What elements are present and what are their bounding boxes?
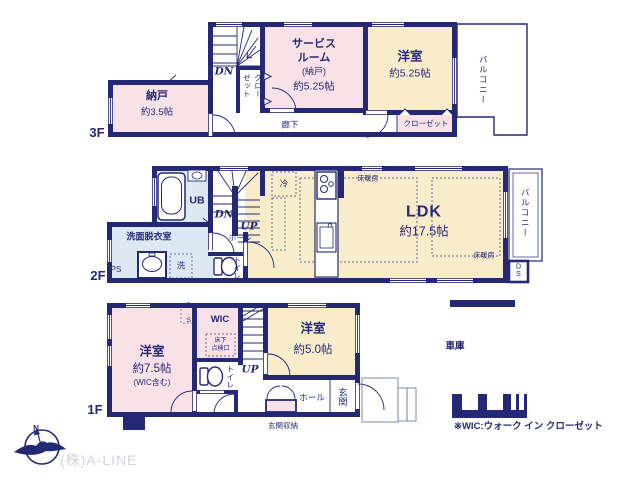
entrance-storage-box <box>266 400 296 412</box>
ds-label: DS <box>515 264 522 279</box>
wic-note: ※WIC:ウォーク イン クローゼット <box>454 422 603 432</box>
ldk-label: LDK <box>406 205 442 222</box>
stairs-dn-label-3f: DN <box>215 66 234 77</box>
kitchen-counter-icon <box>315 170 338 277</box>
floor-heating-label-2: 床暖房 <box>474 252 495 259</box>
stairs-up-label-1f: UP <box>241 364 258 375</box>
stair-closet-label: クローゼット <box>241 74 264 101</box>
ps-label-2f: PS <box>111 266 122 274</box>
company-name: (株)A-LINE <box>60 453 137 468</box>
floor2-plan <box>107 166 542 283</box>
washbasin-icon <box>138 252 166 278</box>
stairs-up-label-2f: UP <box>240 221 257 232</box>
hallway-label: 廊下 <box>281 121 298 130</box>
hall-1f-label: ホール <box>299 394 325 403</box>
bedroom-main-note: (WIC含む) <box>134 379 171 387</box>
service-room-size: 約5.25帖 <box>293 81 334 92</box>
floorplan-canvas: 3F 納戸 約3.5帖 DN クローゼット サービス ルーム (納戸) 約5.2… <box>0 0 640 480</box>
compass-n-label: N <box>33 425 39 433</box>
floor-heating-label-1: 床暖房 <box>358 175 379 182</box>
toilet-2f-label: トイレ <box>233 256 241 280</box>
stairs-dn-label-2f: DN <box>215 209 234 220</box>
room-nando-label: 納戸 <box>146 91 168 103</box>
bedroom-main-label: 洋室 <box>139 345 164 358</box>
toilet-1f-label: トイレ <box>226 365 234 389</box>
service-room-label3: (納戸) <box>302 67 326 76</box>
garage-gate-icon <box>450 300 527 418</box>
underfloor-hatch-label2: 点検口 <box>211 346 229 352</box>
ldk-size: 約17.5帖 <box>399 225 448 238</box>
fridge-label: 冷 <box>280 180 289 189</box>
compass-icon <box>14 428 66 464</box>
service-room-label1: サービス <box>292 39 336 51</box>
entrance-storage-label: 玄関収納 <box>268 422 298 430</box>
balcony-3f-outline <box>457 24 527 135</box>
balcony-2f-label: バルコニー <box>521 188 530 238</box>
bedroom-main-size: 約7.5帖 <box>133 363 172 375</box>
floor3-label: 3F <box>89 126 104 140</box>
closet-3f-label: クローゼット <box>404 120 449 128</box>
room-nando-size: 約3.5帖 <box>141 108 173 118</box>
ps-label-1f: P.S <box>185 302 192 325</box>
porch-steps <box>362 378 416 422</box>
balcony-3f-label: バルコニー <box>479 55 488 105</box>
service-room-label2: ルーム <box>298 53 331 65</box>
garage-label: 車庫 <box>445 342 464 352</box>
floor2-label: 2F <box>90 269 105 283</box>
ub-label: UB <box>189 195 204 206</box>
bedroom-sub-size: 約5.0帖 <box>294 344 333 356</box>
bedroom-sub-label: 洋室 <box>300 322 325 335</box>
floor1-label: 1F <box>87 403 102 417</box>
wic-label: WIC <box>211 315 229 325</box>
washroom-label: 洗面脱衣室 <box>126 232 171 241</box>
bedroom-3f-size: 約5.25帖 <box>389 68 430 79</box>
laundry-label: 洗 <box>177 262 186 271</box>
entrance-label: 玄関 <box>338 388 347 407</box>
bedroom-3f-label: 洋室 <box>397 50 422 63</box>
toilet-1f-icon <box>200 367 223 386</box>
hall-2f-label: ホール <box>229 234 252 242</box>
underfloor-hatch-label1: 床下 <box>214 338 226 344</box>
